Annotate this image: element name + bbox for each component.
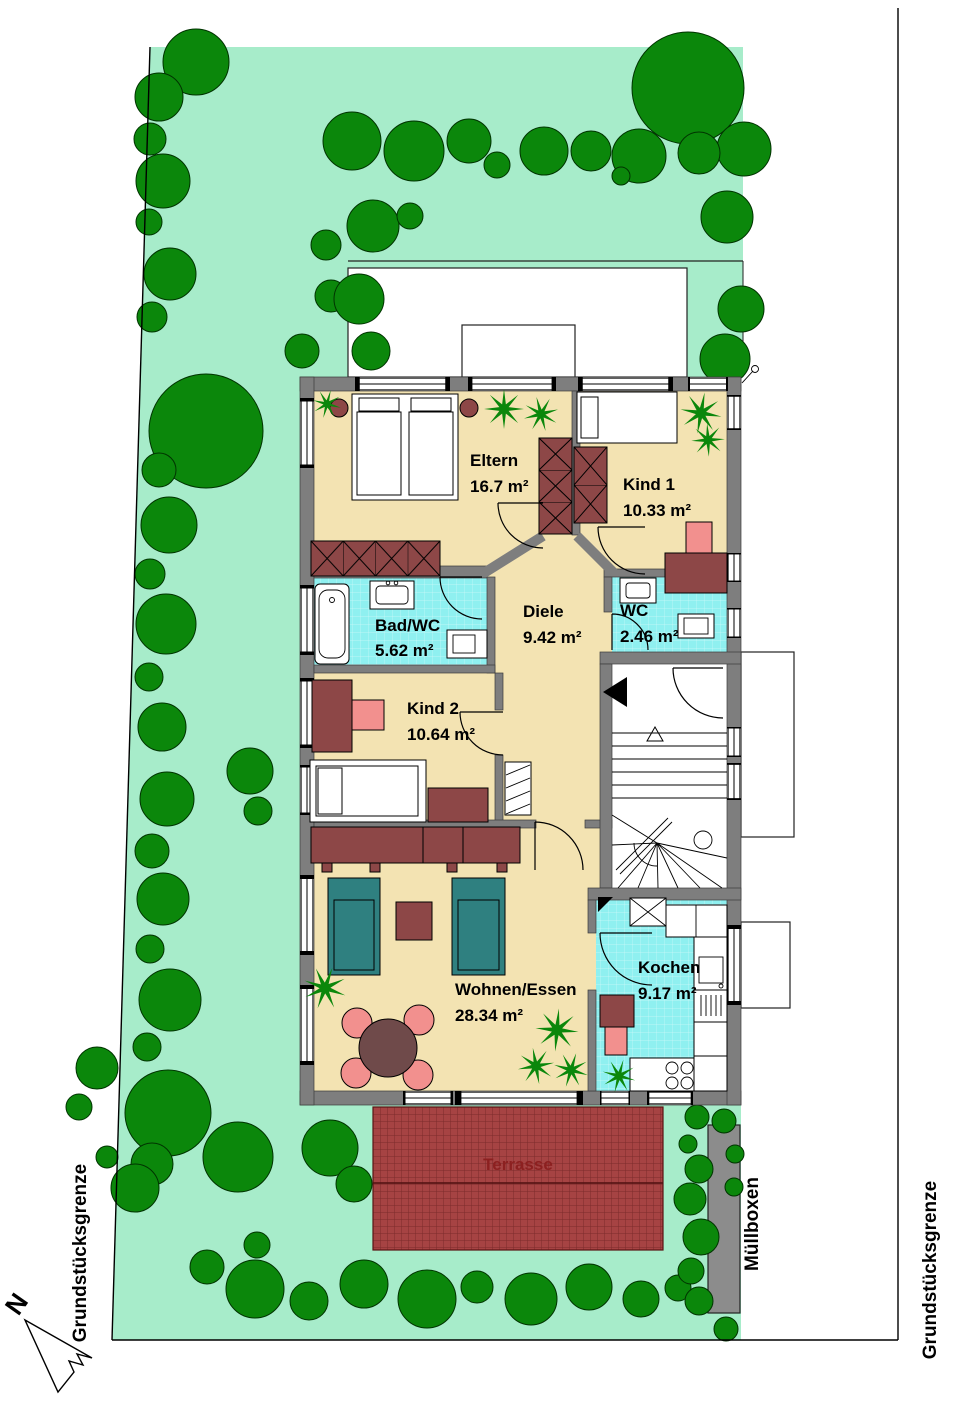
chest-kind2	[428, 788, 488, 822]
room-area-kind1: 10.33 m²	[623, 501, 691, 520]
room-label-kind1: Kind 1	[623, 475, 675, 494]
room-area-badwc: 5.62 m²	[375, 641, 434, 660]
coffee-table	[396, 902, 432, 940]
dumbwaiter-shaft	[630, 898, 666, 926]
room-label-kochen: Kochen	[638, 958, 700, 977]
bathtub	[315, 584, 349, 664]
room-label-wc: WC	[620, 601, 648, 620]
room-label-wohnen: Wohnen/Essen	[455, 980, 577, 999]
desk-chair	[352, 700, 384, 730]
coat-rack	[505, 762, 531, 815]
room-area-kind2: 10.64 m²	[407, 725, 475, 744]
room-label-badwc: Bad/WC	[375, 616, 440, 635]
entry-porch	[741, 652, 794, 837]
room-area-wc: 2.46 m²	[620, 627, 679, 646]
stairwell-floor	[610, 662, 727, 890]
room-area-diele: 9.42 m²	[523, 628, 582, 647]
terrace: Terrasse	[373, 1107, 663, 1250]
wardrobe-tall-2	[574, 447, 607, 523]
bed-kind2	[310, 760, 426, 822]
washbasin-bad	[370, 581, 414, 609]
trash-label: Müllboxen	[742, 1177, 763, 1271]
toilet-wc	[678, 614, 714, 638]
forecourt-step	[462, 325, 575, 377]
kitchen-chair	[605, 1027, 627, 1055]
north-label: N	[0, 1288, 34, 1321]
nightstand	[460, 399, 478, 417]
bed-kind1	[577, 392, 677, 443]
boundary-label-right: Grundstücksgrenze	[920, 1181, 941, 1359]
terrace-label: Terrasse	[483, 1155, 553, 1174]
washbasin-wc	[620, 578, 656, 603]
house: Eltern 16.7 m² Kind 1 10.33 m² Bad/WC 5.…	[297, 366, 794, 1106]
wardrobe-tall-1	[539, 438, 572, 534]
wardrobe-eltern	[311, 541, 440, 576]
toilet-bad	[447, 630, 487, 658]
room-label-diele: Diele	[523, 602, 564, 621]
dining-table	[359, 1019, 417, 1077]
counter-top	[666, 905, 727, 937]
boundary-label-left: Grundstücksgrenze	[70, 1164, 91, 1342]
floor-plan-drawing: Terrasse Müllboxen	[0, 0, 967, 1417]
kitchen-table	[600, 995, 634, 1027]
room-area-eltern: 16.7 m²	[470, 477, 529, 496]
desk-chair	[686, 522, 712, 553]
site-plan-page: Terrasse Müllboxen	[0, 0, 967, 1417]
room-label-eltern: Eltern	[470, 451, 518, 470]
room-label-kind2: Kind 2	[407, 699, 459, 718]
room-area-wohnen: 28.34 m²	[455, 1006, 523, 1025]
room-area-kochen: 9.17 m²	[638, 984, 697, 1003]
side-platform	[741, 922, 790, 1008]
bed-eltern	[330, 394, 478, 500]
